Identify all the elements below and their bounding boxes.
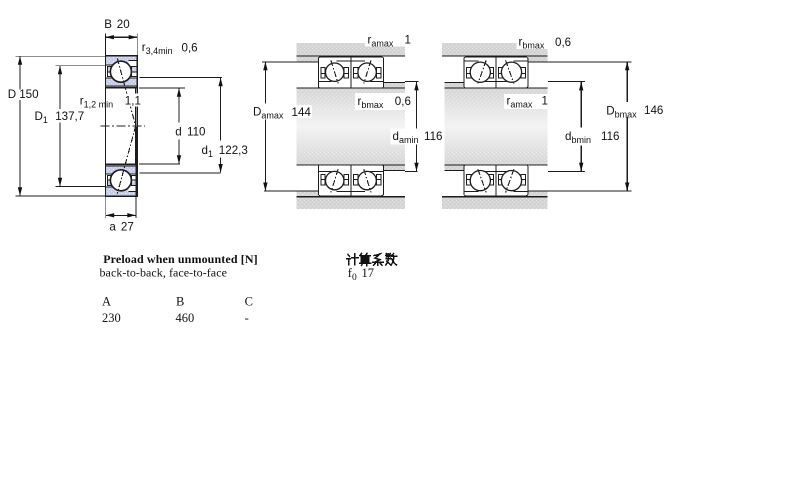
svg-text:0,6: 0,6 <box>182 42 198 55</box>
svg-text:1: 1 <box>542 95 548 108</box>
svg-text:230: 230 <box>102 311 121 325</box>
svg-text:D: D <box>8 88 16 101</box>
svg-text:0,6: 0,6 <box>395 95 411 108</box>
svg-text:A: A <box>102 295 111 309</box>
svg-text:146: 146 <box>644 104 663 117</box>
svg-text:-: - <box>245 311 249 325</box>
svg-text:20: 20 <box>117 18 130 31</box>
svg-text:27: 27 <box>121 221 134 234</box>
svg-text:460: 460 <box>176 311 195 325</box>
svg-text:d: d <box>175 126 181 139</box>
svg-text:17: 17 <box>362 266 375 280</box>
svg-text:B: B <box>104 18 112 31</box>
svg-text:1: 1 <box>405 34 411 47</box>
svg-text:144: 144 <box>292 106 312 119</box>
svg-text:116: 116 <box>424 130 442 143</box>
svg-text:137,7: 137,7 <box>55 110 84 123</box>
svg-text:116: 116 <box>601 130 619 143</box>
svg-text:back-to-back, face-to-face: back-to-back, face-to-face <box>100 266 227 280</box>
svg-text:B: B <box>176 295 184 309</box>
svg-text:C: C <box>245 295 253 309</box>
svg-text:110: 110 <box>187 126 205 139</box>
svg-text:a: a <box>109 221 116 234</box>
svg-text:0,6: 0,6 <box>555 36 571 49</box>
svg-text:150: 150 <box>19 88 38 101</box>
svg-text:1,1: 1,1 <box>125 95 141 108</box>
svg-text:122,3: 122,3 <box>219 144 248 157</box>
svg-text:Preload when unmounted [N]: Preload when unmounted [N] <box>103 252 258 266</box>
